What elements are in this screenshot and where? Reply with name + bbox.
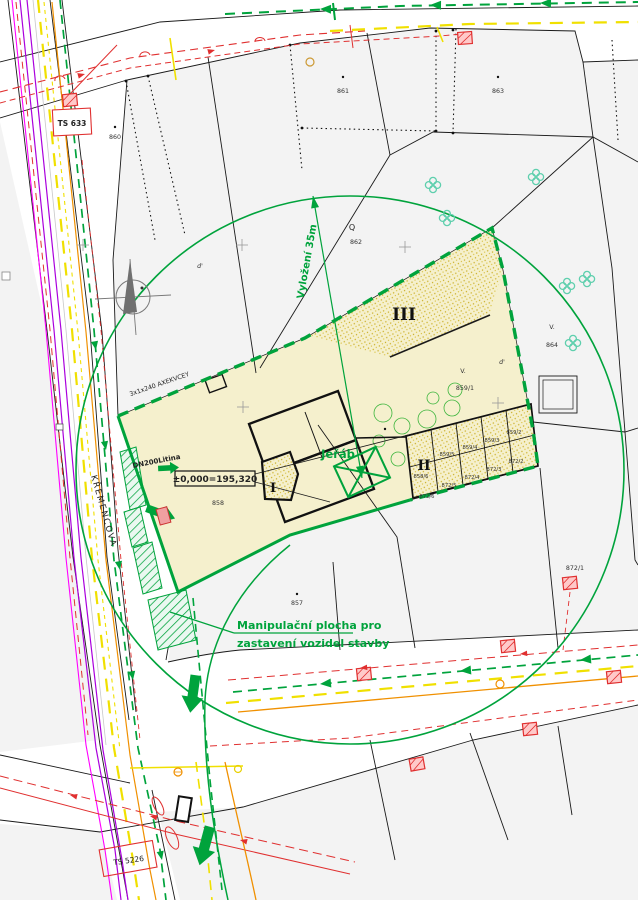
green-dashed-top (225, 2, 638, 14)
site-plan-canvas: ±0,000=195,320 TS 633 TS 5226 KŘEMENCOVA… (0, 0, 638, 900)
v-symbol-1: V. (549, 324, 555, 331)
parcel-859-3: 859/3 (485, 438, 500, 444)
staging-note-line1: Manipulační plocha pro (237, 619, 382, 632)
parcel-862: 862 (350, 239, 362, 246)
parcel-858: 858 (212, 500, 224, 507)
transformer-station-top: TS 633 (52, 108, 91, 136)
level-label: ±0,000=195,320 (173, 475, 258, 485)
parcel-872-3: 872/3 (487, 467, 502, 473)
island-rect (175, 796, 192, 822)
ts-top-label: TS 633 (58, 119, 87, 128)
parcel-859-1: 859/1 (456, 385, 474, 392)
parcel-872-6: 872/6 (420, 494, 435, 500)
parcel-859-2: 859/2 (507, 430, 522, 436)
staging-note-line2: zastavení vozidel stavby (237, 637, 389, 650)
parcel-864: 864 (546, 342, 558, 349)
parcel-859-5: 859/5 (440, 452, 455, 458)
site-plan-drawing: ±0,000=195,320 TS 633 TS 5226 KŘEMENCOVA… (0, 0, 638, 900)
parcel-872-5: 872/5 (442, 483, 457, 489)
red-feeder-ts633 (70, 45, 117, 94)
parcel-857: 857 (291, 600, 303, 607)
crane-label: Jeřáb (320, 447, 355, 461)
v-symbol-2: V. (460, 368, 466, 375)
zone-ii-label: II (417, 458, 430, 474)
parcel-872-4: 872/4 (465, 475, 481, 481)
red-dashed-bottom-n (228, 645, 638, 680)
d-mark-2: d' (197, 263, 203, 270)
d-mark-1: d' (499, 359, 505, 366)
parcel-863: 863 (492, 88, 504, 95)
parcel-872-1: 872/1 (566, 565, 584, 572)
zone-iii-label: III (392, 305, 416, 325)
yellow-dashed-bottom (226, 666, 638, 703)
parcel-861: 861 (337, 88, 349, 95)
green-dashed-bottom (233, 655, 638, 692)
orange-line-bottom (238, 676, 638, 712)
parcel-859-4: 859/4 (463, 445, 479, 451)
stage-i-building (262, 452, 298, 500)
parcel-872-2: 872/2 (509, 459, 524, 465)
parcel-860: 860 (109, 134, 121, 141)
green-tick-top (333, 3, 335, 20)
parcel-858-6: 858/6 (414, 474, 429, 480)
tree-q-symbol: Q (349, 223, 355, 232)
orange-symbol (496, 680, 504, 688)
zone-i-label: I (270, 481, 276, 496)
